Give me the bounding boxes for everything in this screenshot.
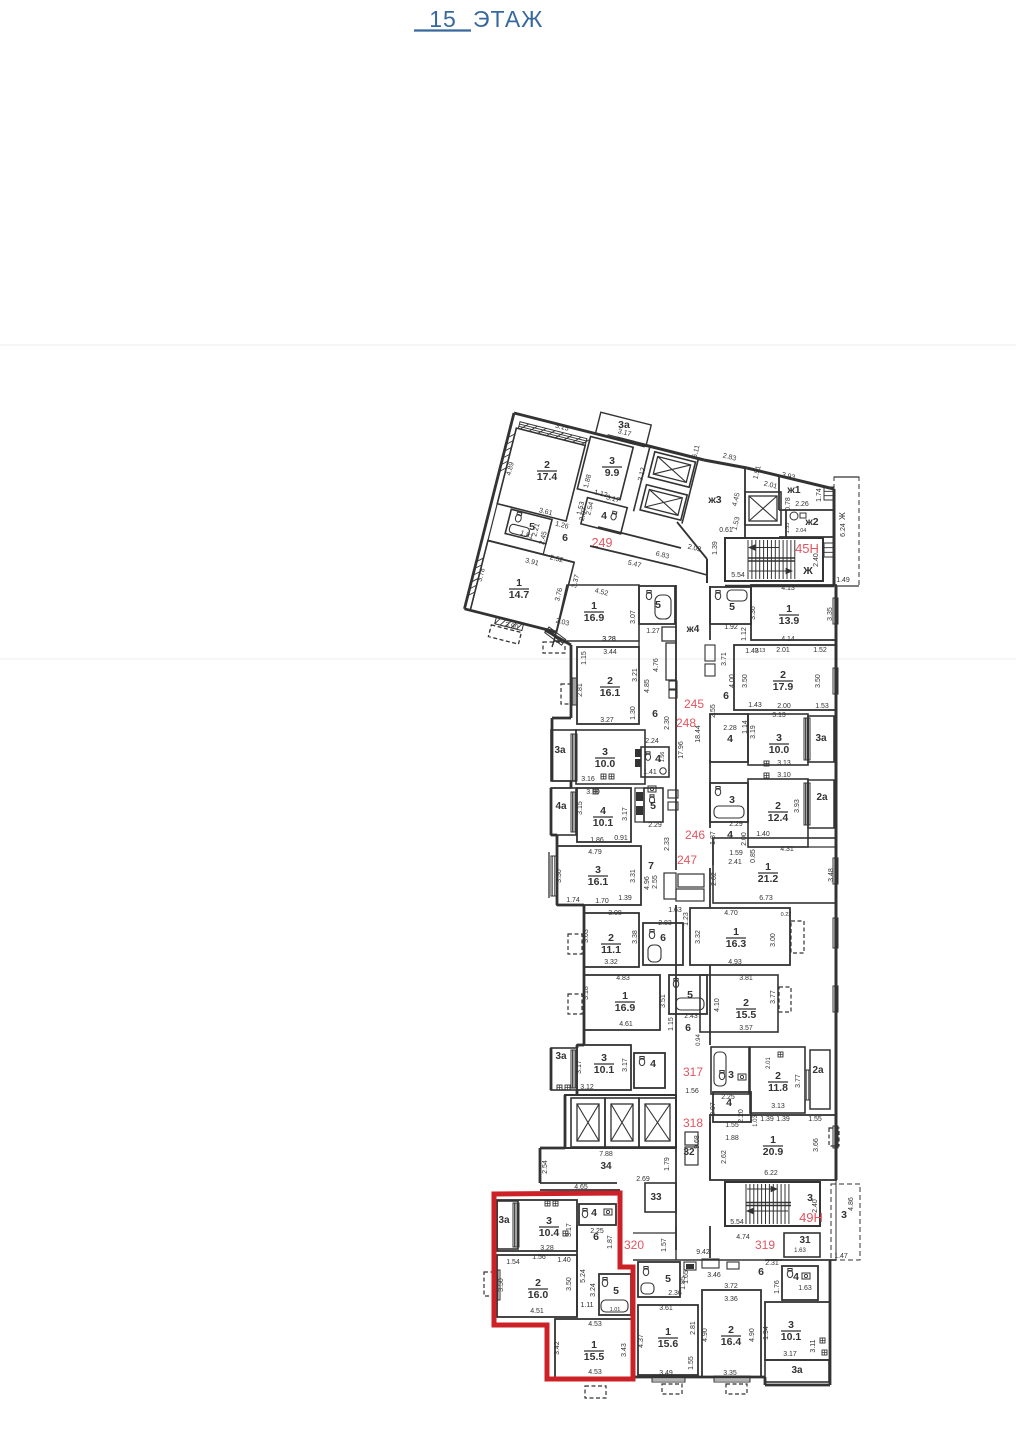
svg-text:16.9: 16.9: [615, 1002, 636, 1014]
svg-text:0.78: 0.78: [785, 497, 792, 511]
svg-text:5: 5: [655, 599, 661, 611]
svg-text:3.08: 3.08: [608, 910, 622, 917]
svg-text:10.1: 10.1: [781, 1331, 802, 1343]
svg-text:1.39: 1.39: [776, 1116, 790, 1123]
svg-text:1: 1: [591, 600, 597, 612]
svg-text:245: 245: [684, 697, 704, 711]
svg-text:4.10: 4.10: [714, 998, 721, 1012]
svg-text:49Н: 49Н: [799, 1210, 823, 1225]
svg-text:4: 4: [727, 829, 733, 841]
svg-text:3.30: 3.30: [556, 869, 563, 883]
svg-text:1.87: 1.87: [607, 1235, 614, 1249]
svg-text:1: 1: [786, 603, 792, 615]
svg-text:15.6: 15.6: [658, 1338, 679, 1350]
svg-text:33: 33: [650, 1192, 662, 1203]
svg-text:1.15: 1.15: [668, 1017, 675, 1031]
svg-text:6: 6: [660, 932, 666, 944]
svg-text:1.74: 1.74: [566, 897, 580, 904]
svg-text:318: 318: [683, 1116, 703, 1130]
svg-text:1.87: 1.87: [710, 831, 717, 845]
svg-text:4.86: 4.86: [848, 1197, 855, 1211]
svg-text:3.18: 3.18: [583, 986, 590, 1000]
svg-text:1.76: 1.76: [774, 1280, 781, 1294]
svg-text:3: 3: [609, 455, 615, 467]
svg-text:ЭТАЖ: ЭТАЖ: [473, 6, 543, 32]
svg-text:1.43: 1.43: [748, 702, 762, 709]
svg-text:5: 5: [650, 800, 656, 812]
svg-text:3.77: 3.77: [795, 1074, 802, 1088]
svg-text:2: 2: [728, 1324, 734, 1336]
svg-text:1.12: 1.12: [741, 627, 748, 641]
svg-text:3.13: 3.13: [777, 760, 791, 767]
svg-text:4.51: 4.51: [530, 1308, 544, 1315]
svg-text:0.22: 0.22: [781, 912, 792, 918]
svg-text:3.17: 3.17: [576, 1060, 583, 1074]
svg-text:1.59: 1.59: [729, 850, 743, 857]
svg-text:1: 1: [516, 577, 522, 589]
svg-text:3.36: 3.36: [750, 606, 757, 620]
svg-text:2.81: 2.81: [690, 1321, 697, 1335]
svg-text:3a: 3a: [498, 1215, 510, 1226]
svg-text:34: 34: [600, 1161, 612, 1172]
svg-text:10.0: 10.0: [595, 758, 616, 770]
svg-text:1.56: 1.56: [532, 1254, 546, 1261]
svg-text:4.96: 4.96: [644, 876, 651, 890]
svg-text:3.43: 3.43: [621, 1343, 628, 1357]
svg-text:5: 5: [687, 989, 693, 1001]
svg-text:3.17: 3.17: [622, 1058, 629, 1072]
svg-text:7.88: 7.88: [599, 1151, 613, 1158]
svg-text:ж1: ж1: [786, 484, 800, 496]
svg-text:6: 6: [723, 690, 729, 702]
svg-text:17.4: 17.4: [537, 471, 558, 483]
svg-text:4.93: 4.93: [728, 959, 742, 966]
svg-text:2.30: 2.30: [664, 716, 671, 730]
svg-text:6: 6: [562, 532, 568, 544]
svg-text:2: 2: [607, 675, 613, 687]
svg-text:7: 7: [648, 860, 654, 872]
svg-text:2.07: 2.07: [710, 1102, 717, 1116]
svg-text:11.8: 11.8: [768, 1082, 788, 1094]
svg-text:3a: 3a: [815, 733, 827, 744]
svg-text:2.26: 2.26: [795, 501, 809, 508]
svg-text:1.41: 1.41: [643, 769, 657, 776]
svg-text:4: 4: [600, 805, 606, 817]
svg-text:1: 1: [622, 990, 628, 1002]
svg-text:0.91: 0.91: [614, 835, 628, 842]
svg-text:3.49: 3.49: [659, 1370, 673, 1377]
svg-text:2.20: 2.20: [738, 1109, 745, 1123]
svg-text:4.90: 4.90: [702, 1328, 709, 1342]
svg-text:2.40: 2.40: [813, 553, 820, 567]
svg-text:3.50: 3.50: [498, 1278, 505, 1292]
svg-text:17.96: 17.96: [678, 741, 685, 759]
svg-text:1.92: 1.92: [724, 624, 738, 631]
svg-text:2.54: 2.54: [542, 1160, 549, 1174]
svg-text:3.12: 3.12: [580, 1084, 594, 1091]
svg-text:3.77: 3.77: [770, 990, 777, 1004]
svg-text:3.07: 3.07: [630, 610, 637, 624]
svg-text:2.62: 2.62: [721, 1150, 728, 1164]
svg-text:2.04: 2.04: [796, 528, 807, 534]
svg-text:2.83: 2.83: [658, 920, 672, 927]
svg-text:5: 5: [613, 1285, 619, 1297]
svg-text:1.56: 1.56: [685, 1088, 699, 1095]
svg-text:4.13: 4.13: [781, 585, 795, 592]
svg-text:1.74: 1.74: [816, 488, 823, 502]
svg-text:1.23: 1.23: [683, 912, 690, 926]
svg-text:3: 3: [601, 1052, 607, 1064]
svg-text:1.55: 1.55: [808, 1116, 822, 1123]
svg-text:4.76: 4.76: [653, 658, 660, 672]
svg-text:16.9: 16.9: [584, 612, 605, 624]
svg-text:3.21: 3.21: [632, 668, 639, 682]
svg-text:2: 2: [775, 1070, 781, 1082]
svg-text:3.93: 3.93: [794, 799, 801, 813]
svg-text:2.29: 2.29: [648, 822, 662, 829]
svg-text:16.1: 16.1: [600, 687, 621, 699]
svg-text:1.79: 1.79: [664, 1157, 671, 1171]
svg-text:10.0: 10.0: [769, 744, 790, 756]
svg-text:3.50: 3.50: [815, 674, 822, 688]
svg-text:2.43: 2.43: [684, 1013, 698, 1020]
svg-text:2.29: 2.29: [729, 821, 743, 828]
svg-text:6.73: 6.73: [759, 895, 773, 902]
svg-text:2.55: 2.55: [710, 704, 717, 718]
svg-text:2a: 2a: [816, 792, 828, 803]
svg-text:2.28: 2.28: [723, 725, 737, 732]
svg-text:2.25: 2.25: [721, 1094, 735, 1101]
svg-text:3a: 3a: [554, 745, 566, 756]
svg-text:11.1: 11.1: [601, 944, 621, 956]
svg-text:317: 317: [683, 1065, 703, 1079]
svg-text:17.9: 17.9: [773, 681, 794, 693]
svg-text:9.9: 9.9: [605, 467, 620, 479]
svg-text:1.63: 1.63: [798, 1285, 812, 1292]
svg-text:3.32: 3.32: [604, 959, 618, 966]
svg-text:1: 1: [665, 1326, 671, 1338]
svg-text:2.36: 2.36: [668, 1290, 682, 1297]
svg-text:1.33: 1.33: [785, 523, 791, 534]
svg-text:3.50: 3.50: [566, 1277, 573, 1291]
svg-text:2.41: 2.41: [728, 859, 742, 866]
svg-text:12.4: 12.4: [768, 812, 789, 824]
svg-text:3.17: 3.17: [783, 1351, 797, 1358]
svg-text:1.54: 1.54: [506, 1259, 520, 1266]
svg-text:3.48: 3.48: [828, 868, 835, 882]
svg-text:4: 4: [655, 753, 661, 765]
svg-text:1.14: 1.14: [742, 720, 749, 734]
svg-text:3a: 3a: [791, 1365, 803, 1376]
svg-text:1.57: 1.57: [661, 1238, 668, 1252]
svg-text:2: 2: [780, 669, 786, 681]
svg-text:246: 246: [685, 828, 705, 842]
svg-text:3.50: 3.50: [742, 674, 749, 688]
svg-text:3.24: 3.24: [590, 1283, 597, 1297]
svg-text:9.68: 9.68: [694, 1135, 701, 1149]
svg-text:3.72: 3.72: [724, 1283, 738, 1290]
svg-text:10.1: 10.1: [593, 817, 614, 829]
svg-text:4: 4: [591, 1207, 597, 1219]
svg-text:319: 319: [755, 1238, 775, 1252]
svg-text:2.24: 2.24: [645, 738, 659, 745]
svg-text:2.01: 2.01: [766, 1057, 772, 1069]
svg-text:4: 4: [727, 733, 733, 745]
svg-text:1.53: 1.53: [815, 703, 829, 710]
svg-text:2.69: 2.69: [636, 1176, 650, 1183]
svg-text:5: 5: [665, 1273, 671, 1285]
svg-text:1: 1: [765, 861, 771, 873]
svg-text:1.39: 1.39: [618, 895, 632, 902]
svg-text:4: 4: [601, 510, 607, 522]
svg-text:3a: 3a: [618, 419, 630, 431]
svg-text:Ж: Ж: [837, 512, 847, 520]
svg-text:3.31: 3.31: [630, 869, 637, 883]
svg-text:3.10: 3.10: [777, 772, 791, 779]
svg-text:2.00: 2.00: [777, 703, 791, 710]
svg-text:4: 4: [650, 1058, 656, 1070]
svg-text:2: 2: [775, 800, 781, 812]
svg-text:1: 1: [733, 926, 739, 938]
svg-text:1.03: 1.03: [753, 1115, 759, 1127]
svg-text:Ж: Ж: [802, 565, 813, 577]
svg-text:1.11: 1.11: [580, 1302, 593, 1309]
svg-text:320: 320: [624, 1238, 644, 1252]
svg-text:3.03: 3.03: [583, 929, 590, 943]
svg-text:1.15: 1.15: [581, 651, 588, 665]
svg-text:5: 5: [729, 601, 735, 613]
svg-text:3.61: 3.61: [659, 1305, 673, 1312]
svg-text:2.31: 2.31: [765, 1260, 779, 1267]
svg-text:16.4: 16.4: [721, 1336, 742, 1348]
svg-text:1.40: 1.40: [756, 831, 770, 838]
svg-text:1.63: 1.63: [794, 1248, 806, 1254]
svg-text:4.74: 4.74: [736, 1234, 750, 1241]
svg-text:2: 2: [535, 1277, 541, 1289]
svg-text:3.51: 3.51: [660, 994, 667, 1008]
svg-text:2.62: 2.62: [711, 872, 718, 886]
svg-text:2.81: 2.81: [577, 683, 584, 697]
svg-text:2a: 2a: [812, 1065, 824, 1076]
svg-text:3.71: 3.71: [721, 652, 728, 666]
svg-text:5.24: 5.24: [580, 1269, 587, 1283]
svg-text:4.31: 4.31: [780, 846, 794, 853]
svg-text:6: 6: [685, 1022, 691, 1034]
svg-text:248: 248: [676, 716, 696, 730]
svg-text:3.57: 3.57: [739, 1025, 753, 1032]
svg-text:10.1: 10.1: [594, 1064, 615, 1076]
svg-text:3.42: 3.42: [554, 1341, 561, 1355]
svg-text:1.27: 1.27: [646, 628, 660, 635]
svg-text:2.40: 2.40: [812, 1199, 819, 1213]
svg-text:2.01: 2.01: [776, 647, 790, 654]
svg-text:2.00: 2.00: [741, 832, 748, 846]
svg-text:2.55: 2.55: [652, 875, 659, 889]
svg-text:1.52: 1.52: [813, 647, 827, 654]
svg-text:2.33: 2.33: [664, 837, 671, 851]
svg-text:1.49: 1.49: [836, 577, 850, 584]
svg-text:3.17: 3.17: [622, 807, 629, 821]
svg-text:ж3: ж3: [707, 494, 721, 506]
svg-text:1.55: 1.55: [725, 1122, 739, 1129]
svg-text:2: 2: [608, 932, 614, 944]
svg-text:3.36: 3.36: [724, 1296, 738, 1303]
svg-text:3.16: 3.16: [581, 776, 595, 783]
svg-text:3.81: 3.81: [739, 975, 753, 982]
svg-text:5.54: 5.54: [730, 1219, 744, 1226]
svg-text:4.53: 4.53: [588, 1321, 602, 1328]
svg-text:4.90: 4.90: [749, 1328, 756, 1342]
svg-text:3: 3: [546, 1215, 552, 1227]
svg-text:1: 1: [591, 1339, 597, 1351]
svg-text:31: 31: [799, 1235, 811, 1246]
svg-text:4.14: 4.14: [781, 636, 795, 643]
svg-text:3.15: 3.15: [577, 801, 584, 815]
svg-text:4.70: 4.70: [724, 910, 738, 917]
svg-text:3: 3: [776, 732, 782, 744]
svg-text:6.22: 6.22: [764, 1170, 778, 1177]
svg-text:3: 3: [788, 1319, 794, 1331]
svg-text:18.44: 18.44: [695, 725, 702, 743]
svg-text:2.25: 2.25: [590, 1228, 604, 1235]
svg-text:1.86: 1.86: [590, 837, 604, 844]
svg-text:3.44: 3.44: [603, 649, 617, 656]
svg-text:0.85: 0.85: [750, 849, 757, 863]
svg-text:16.3: 16.3: [726, 938, 747, 950]
svg-text:1.70: 1.70: [595, 898, 609, 905]
svg-text:4.65: 4.65: [574, 1184, 588, 1191]
svg-text:21.2: 21.2: [758, 873, 779, 885]
svg-text:3: 3: [841, 1209, 847, 1221]
svg-text:1.55: 1.55: [688, 1356, 695, 1370]
svg-text:9.42: 9.42: [696, 1249, 710, 1256]
svg-text:4: 4: [793, 1271, 799, 1283]
svg-text:3: 3: [602, 746, 608, 758]
svg-text:3a: 3a: [555, 1051, 567, 1062]
svg-text:4.53: 4.53: [588, 1369, 602, 1376]
svg-text:20.9: 20.9: [763, 1146, 784, 1158]
svg-text:16.1: 16.1: [588, 876, 609, 888]
svg-text:3.28: 3.28: [602, 636, 616, 643]
svg-text:5.54: 5.54: [731, 572, 745, 579]
svg-text:3.46: 3.46: [707, 1272, 721, 1279]
svg-text:3: 3: [595, 864, 601, 876]
svg-text:3.13: 3.13: [772, 712, 786, 719]
svg-text:3.35: 3.35: [827, 607, 834, 621]
svg-text:1.94: 1.94: [763, 1326, 770, 1340]
svg-text:15.5: 15.5: [736, 1009, 757, 1021]
svg-text:ж4: ж4: [686, 624, 700, 635]
svg-text:0.13: 0.13: [755, 648, 766, 654]
svg-text:6.24: 6.24: [840, 523, 847, 537]
svg-text:1.63: 1.63: [668, 907, 682, 914]
svg-text:3.28: 3.28: [540, 1245, 554, 1252]
svg-text:ж2: ж2: [804, 516, 818, 528]
svg-text:4.61: 4.61: [619, 1021, 633, 1028]
svg-text:4.85: 4.85: [644, 679, 651, 693]
svg-text:4.83: 4.83: [616, 975, 630, 982]
svg-text:0.94: 0.94: [696, 1034, 702, 1046]
svg-text:3: 3: [729, 794, 735, 806]
svg-text:15: 15: [429, 6, 457, 32]
svg-text:1.88: 1.88: [725, 1135, 739, 1142]
svg-text:4.79: 4.79: [588, 849, 602, 856]
svg-text:15.5: 15.5: [584, 1351, 605, 1363]
svg-text:1.47: 1.47: [834, 1253, 848, 1260]
svg-text:2: 2: [743, 997, 749, 1009]
svg-text:1.30: 1.30: [630, 706, 637, 720]
svg-text:1.39: 1.39: [760, 1116, 774, 1123]
svg-text:10.4: 10.4: [539, 1227, 560, 1239]
svg-text:3.27: 3.27: [600, 717, 614, 724]
svg-text:6: 6: [758, 1266, 764, 1278]
svg-text:4.37: 4.37: [638, 1334, 645, 1348]
svg-text:2: 2: [544, 459, 550, 471]
svg-text:4a: 4a: [555, 801, 567, 812]
svg-text:1.40: 1.40: [557, 1257, 571, 1264]
svg-text:1: 1: [770, 1134, 776, 1146]
svg-text:16.0: 16.0: [528, 1289, 549, 1301]
svg-text:3.32: 3.32: [695, 930, 702, 944]
svg-text:6: 6: [652, 708, 658, 720]
svg-text:1.39: 1.39: [712, 541, 719, 555]
svg-text:247: 247: [677, 853, 697, 867]
svg-text:3.19: 3.19: [750, 725, 757, 739]
svg-text:5: 5: [529, 521, 535, 533]
svg-text:3: 3: [728, 1069, 734, 1081]
svg-text:13.9: 13.9: [779, 615, 800, 627]
svg-text:3.17: 3.17: [566, 1223, 573, 1237]
svg-text:14.7: 14.7: [509, 589, 530, 601]
svg-text:3.38: 3.38: [632, 930, 639, 944]
svg-text:4.00: 4.00: [729, 674, 736, 688]
svg-text:1.85: 1.85: [680, 1276, 687, 1290]
svg-text:3.11: 3.11: [810, 1339, 817, 1352]
svg-text:3.13: 3.13: [771, 1103, 785, 1110]
svg-text:3.66: 3.66: [813, 1138, 820, 1152]
svg-text:3.00: 3.00: [770, 933, 777, 947]
svg-text:3.35: 3.35: [723, 1370, 737, 1377]
